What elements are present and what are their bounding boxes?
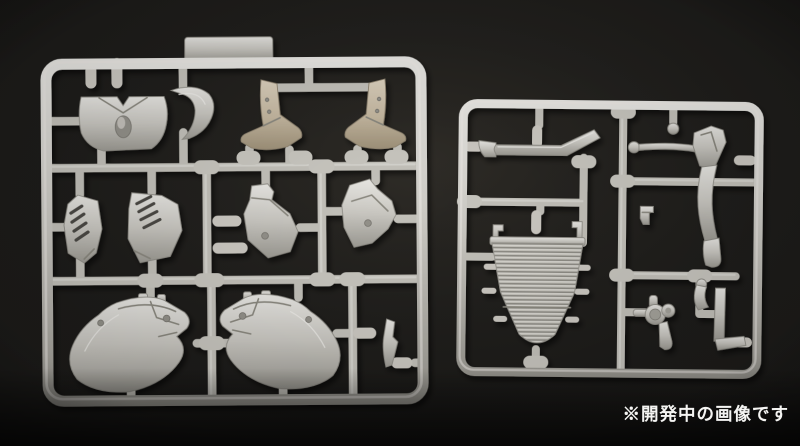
photo-of-model-kit-sprues: ※開発中の画像です — [0, 0, 800, 446]
development-caption: ※開発中の画像です — [623, 404, 790, 424]
